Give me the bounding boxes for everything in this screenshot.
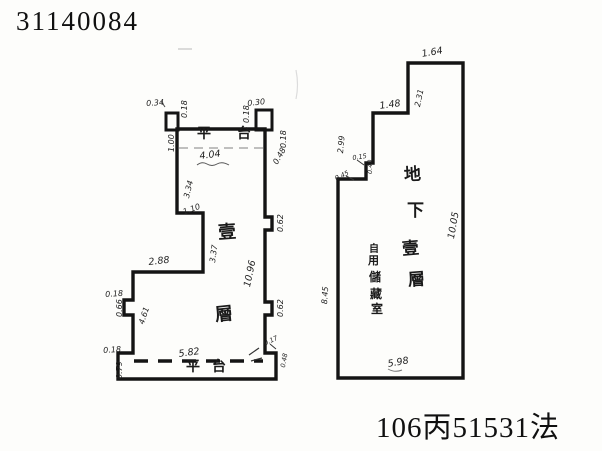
floor-label-char-2: 層: [214, 304, 234, 324]
dim-left-left-notch: 0.66: [116, 299, 124, 317]
use-label-char-3: 儲: [369, 271, 381, 283]
platform-label-top: 平台: [197, 128, 277, 142]
dim-left-bottom-left-small: 0.18: [103, 346, 121, 355]
dim-left-step-width: 2.88: [148, 256, 170, 268]
basement-label-char-3: 壹: [401, 239, 419, 257]
use-label-char-5: 室: [371, 303, 383, 315]
dim-right-mid-wall: 2.99: [337, 135, 347, 153]
left-plan-outline: [118, 129, 276, 379]
dim-right-jog-small-2: 0.40: [367, 160, 374, 174]
dim-left-top-right-pillar: 0.18: [243, 105, 251, 123]
floor-label-char-1: 壹: [217, 222, 236, 241]
dim-left-top-left-pillar: 0.18: [181, 100, 189, 118]
dim-right-left-wall-length: 8.45: [321, 286, 330, 304]
dim-left-right-notch-lower: 0.62: [277, 299, 285, 317]
floorplan-linework: [0, 0, 602, 451]
basement-label-char-1: 地: [404, 166, 422, 184]
use-label-char-1: 自: [369, 245, 379, 255]
document-number: 31140084: [16, 6, 139, 37]
corner-scribble-bottom-right-1: [249, 348, 262, 361]
squiggle-under-4-04: [197, 163, 229, 166]
dim-left-left-notch-small: 0.18: [105, 290, 123, 299]
dim-right-jog-small-1: 0.15: [352, 153, 367, 161]
dim-left-top-left-width: 0.34: [146, 99, 164, 108]
dim-left-platform-depth: 1.00: [168, 134, 176, 152]
platform-label-bottom: 平台: [186, 361, 238, 375]
basement-label-char-4: 層: [407, 270, 425, 288]
dim-left-top-right-side: 0.18: [280, 130, 288, 148]
dim-left-bottom-left-pillar: 0.79: [116, 361, 124, 379]
right-plan-outline: [338, 63, 463, 378]
scanned-floorplan-page: 31140084 106丙51531法 平台 平台 壹 層 地 下 壹 層 自 …: [0, 0, 602, 451]
dim-left-right-notch-upper: 0.62: [277, 214, 285, 232]
reference-number: 106丙51531法: [376, 404, 560, 446]
scan-fold-mark: [296, 70, 298, 99]
dim-left-platform-width: 4.04: [199, 149, 221, 161]
use-label-char-4: 藏: [370, 288, 382, 300]
basement-label-char-2: 下: [407, 202, 424, 219]
use-label-char-2: 用: [368, 256, 379, 267]
